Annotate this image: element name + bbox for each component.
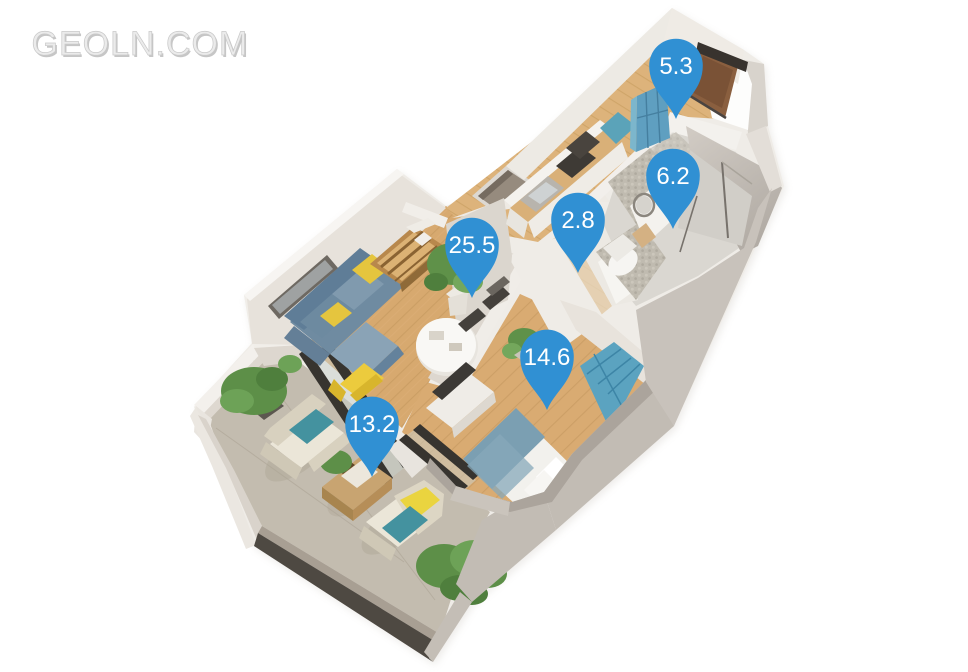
svg-text:5.3: 5.3 [659,53,692,80]
svg-text:GEOLN.COM: GEOLN.COM [32,25,249,63]
svg-text:13.2: 13.2 [349,411,396,438]
svg-text:14.6: 14.6 [524,344,571,371]
svg-text:2.8: 2.8 [561,207,594,234]
svg-text:6.2: 6.2 [656,163,689,190]
svg-text:25.5: 25.5 [449,232,496,259]
